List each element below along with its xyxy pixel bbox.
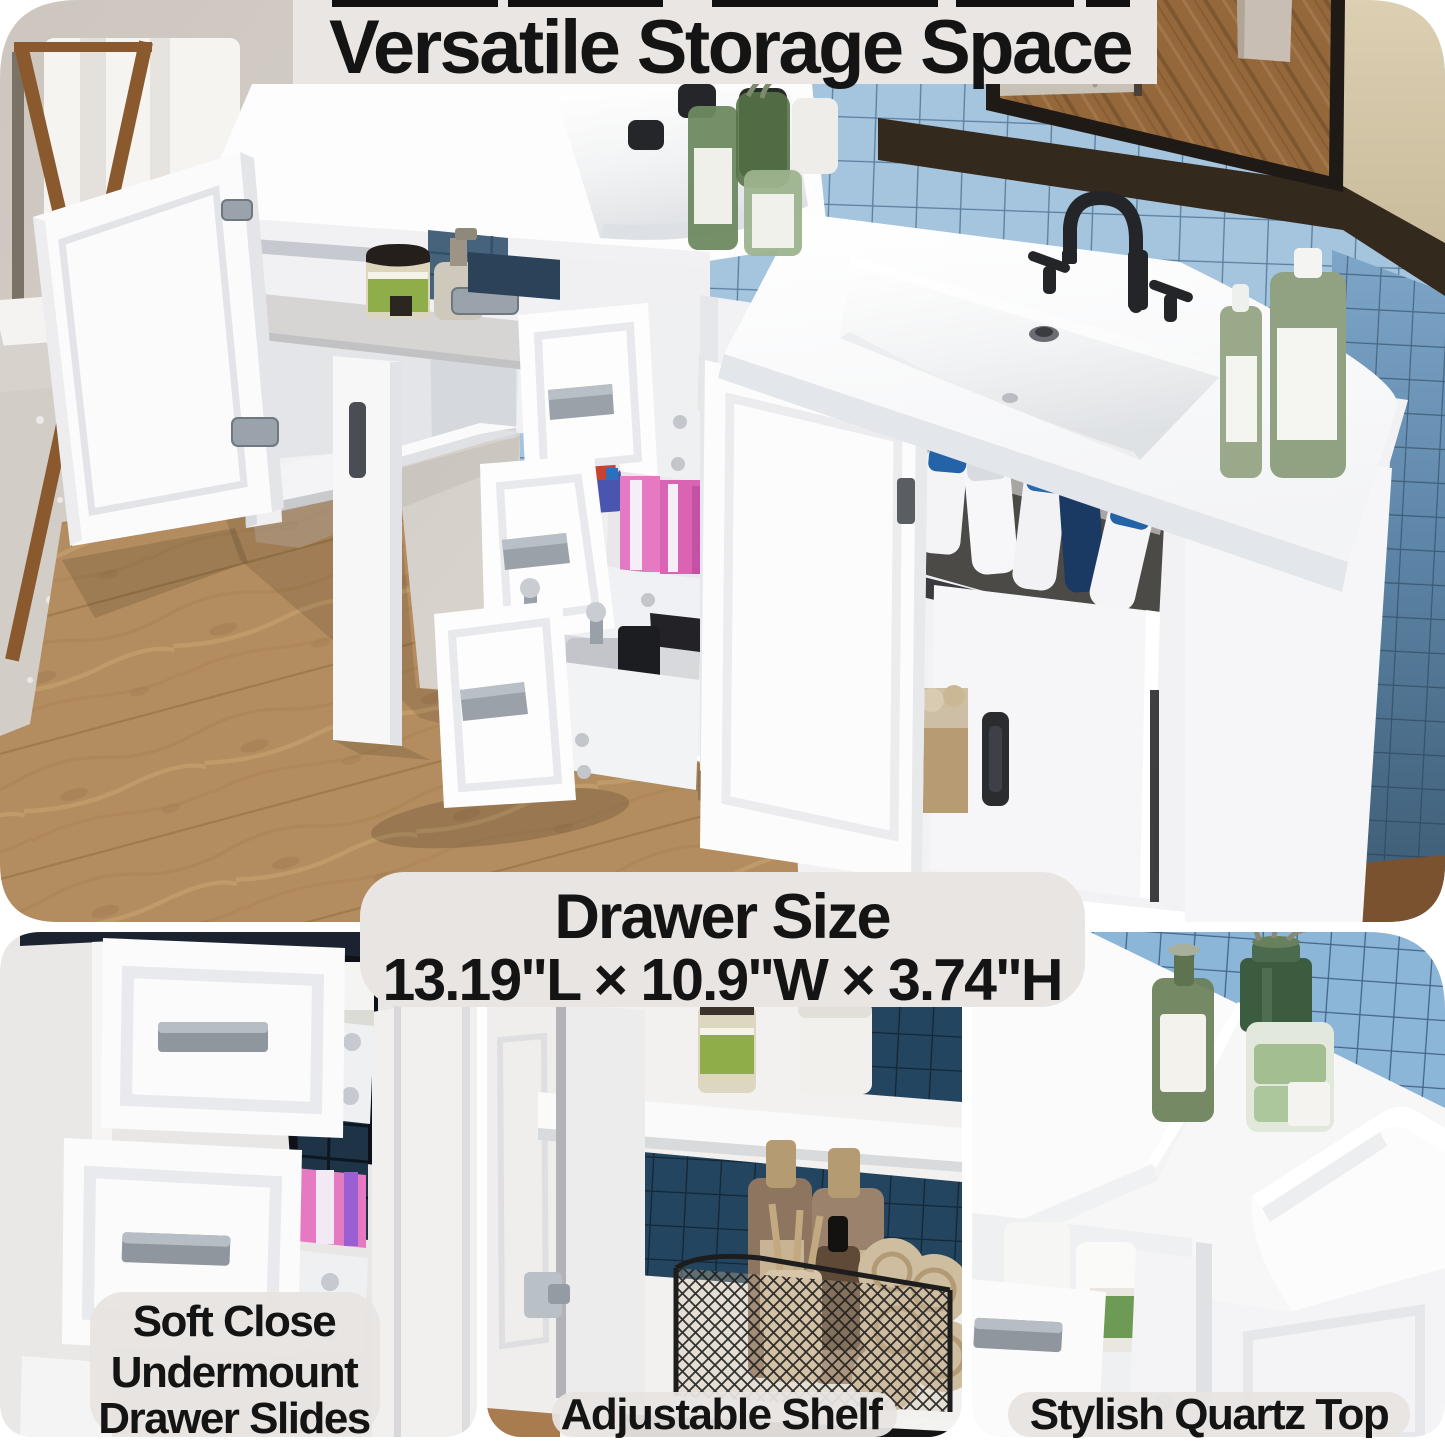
svg-text:Soft Close: Soft Close <box>133 1297 336 1346</box>
svg-text:Adjustable Shelf: Adjustable Shelf <box>561 1390 884 1439</box>
svg-text:13.19"L × 10.9"W × 3.74"H: 13.19"L × 10.9"W × 3.74"H <box>383 947 1062 1013</box>
svg-text:Drawer Slides: Drawer Slides <box>98 1394 370 1443</box>
svg-text:Undermount: Undermount <box>111 1348 359 1397</box>
svg-text:Stylish Quartz Top: Stylish Quartz Top <box>1030 1390 1389 1439</box>
svg-text:Versatile Storage Space: Versatile Storage Space <box>329 5 1131 90</box>
svg-text:Drawer Size: Drawer Size <box>554 882 889 952</box>
